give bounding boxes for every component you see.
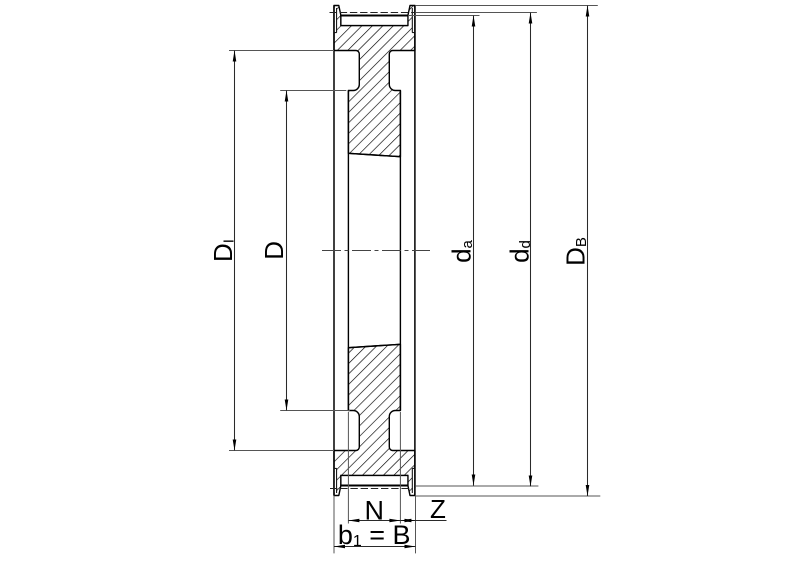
svg-text:Z: Z [430,494,446,524]
svg-text:b1 = B: b1 = B [338,520,411,550]
svg-text:D: D [259,241,289,260]
